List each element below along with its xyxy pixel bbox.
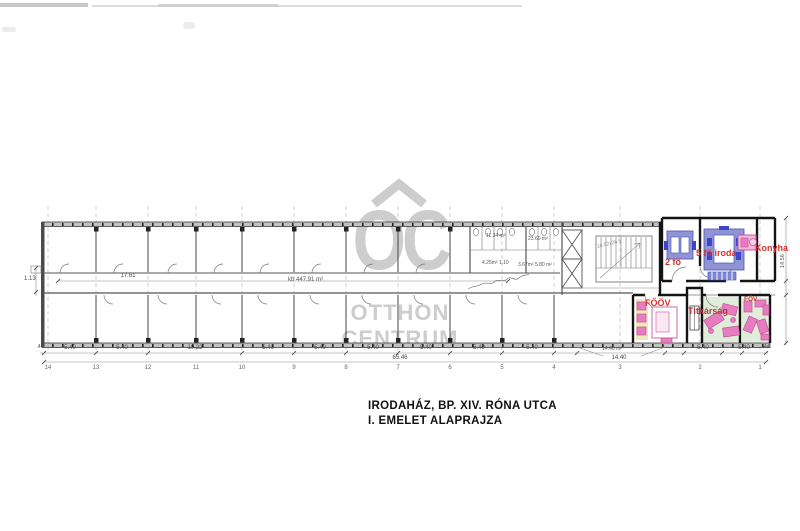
office-furniture-two-person: [664, 231, 696, 259]
grid-number: 6: [448, 365, 451, 372]
dim-segment: 5.40: [697, 345, 709, 352]
corridor-area-note: kb 447.91 m²: [288, 277, 323, 284]
grid-number: 5: [500, 365, 503, 372]
drawing-title-line1: IRODAHÁZ, BP. XIV. RÓNA UTCA: [368, 400, 557, 413]
grid-number: 11: [193, 365, 199, 372]
total-length-dim: 65.46: [392, 355, 407, 362]
grid-number: 2: [698, 365, 701, 372]
dim-segment: .44: [37, 345, 44, 351]
grid-number: 9: [292, 365, 295, 372]
corridor-length-dim: 17.61: [120, 273, 135, 280]
grid-number: 1: [758, 365, 761, 372]
dim-segment: 5.40: [314, 345, 326, 352]
dim-segment: 5.40: [116, 345, 128, 352]
bottom-row-doors: [104, 295, 527, 304]
dim-segment: 10.22: [187, 345, 202, 352]
grid-number: 13: [93, 365, 100, 372]
wc-block: [470, 222, 562, 295]
wc-area-note: 11.34 m²: [486, 234, 505, 240]
dim-segment: 5.40: [367, 345, 379, 352]
dim-segment: 5.40: [64, 345, 76, 352]
top-row-partitions: [94, 227, 453, 272]
dim-segment: 5.40: [738, 345, 750, 352]
dim-segment: .44: [763, 345, 770, 351]
dim-segment: 5.40: [473, 345, 485, 352]
grid-number: 10: [239, 365, 246, 372]
grid-number: 12: [145, 365, 152, 372]
dim-segment: 5.40: [420, 345, 432, 352]
room-label-executive: FŐÖV: [645, 299, 671, 309]
room-label-kitchen: Konyha: [755, 244, 788, 254]
grid-number: 7: [396, 365, 399, 372]
room-label-five-person-office: 5 fő iroda: [696, 249, 737, 259]
dim-segment: 14.40: [611, 355, 626, 362]
dim-segment: 5.40: [526, 345, 538, 352]
grid-number: 4: [552, 365, 555, 372]
bay-area-note: 14.46 m²: [602, 347, 622, 353]
wc-area-note: 23.60 m²: [528, 237, 548, 243]
wc-area-note: 4.25m² 1.10: [482, 261, 509, 267]
kitchen-icon: [738, 235, 757, 250]
grid-number: 3: [618, 365, 621, 372]
left-offset-dim: 1.13: [24, 276, 36, 283]
wc-area-note: 3.67m² 5.80 m²: [518, 263, 552, 269]
room-label-secretariat: Titkárság: [688, 307, 728, 317]
drawing-title-line2: I. EMELET ALAPRAJZA: [368, 415, 502, 428]
dim-segment: 5.40: [262, 345, 274, 352]
bottom-row-partitions: [94, 295, 557, 343]
room-label-two-person: 2 fő: [665, 258, 681, 268]
right-height-dim: 14.56: [780, 254, 786, 268]
elevator-shaft: [562, 230, 582, 288]
grid-number: 14: [45, 365, 52, 372]
room-label-corner-office: FŐV: [744, 296, 757, 303]
grid-number: 8: [344, 365, 347, 372]
scanned-floorplan-page: OC OTTHON CENTRUM: [0, 0, 800, 531]
handwritten-scribble: [468, 274, 529, 289]
